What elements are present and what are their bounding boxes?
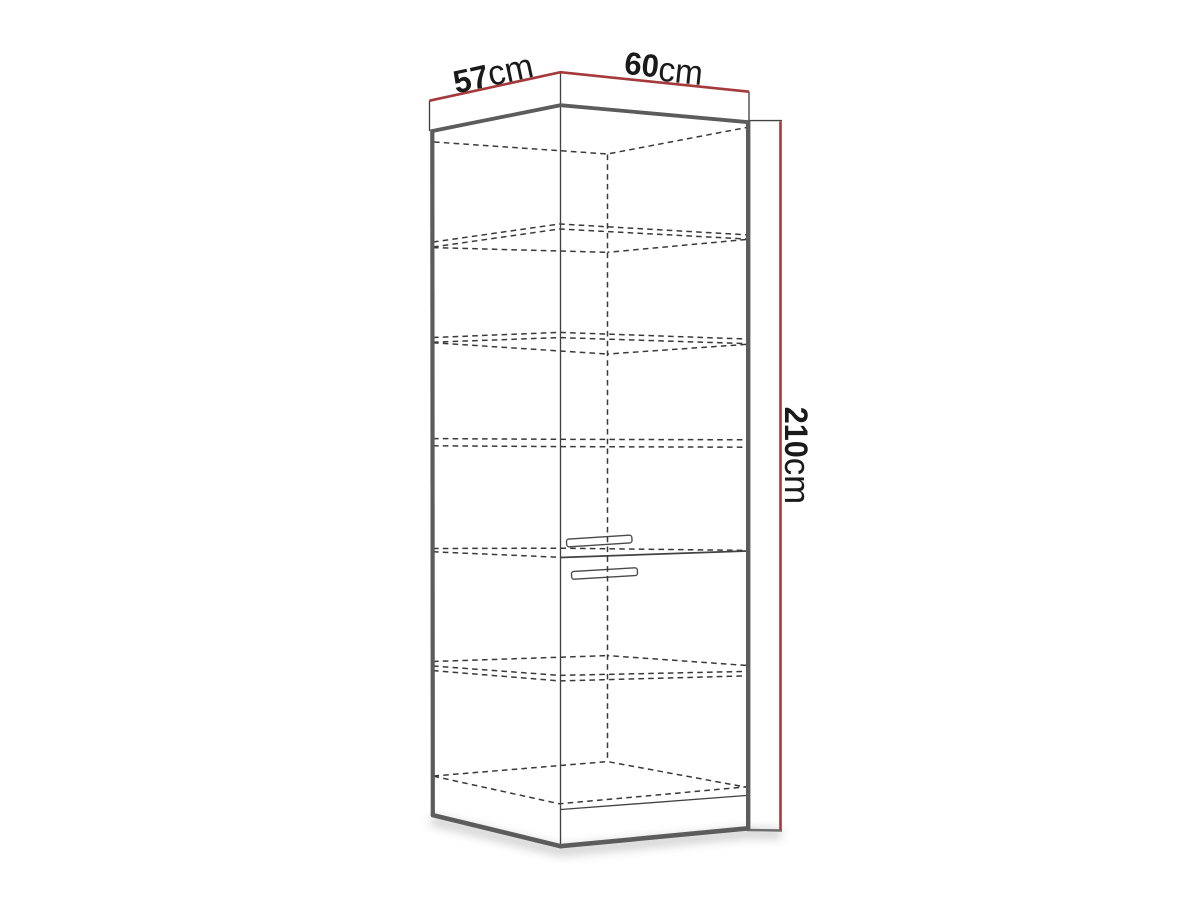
svg-text:210cm: 210cm: [777, 407, 818, 505]
